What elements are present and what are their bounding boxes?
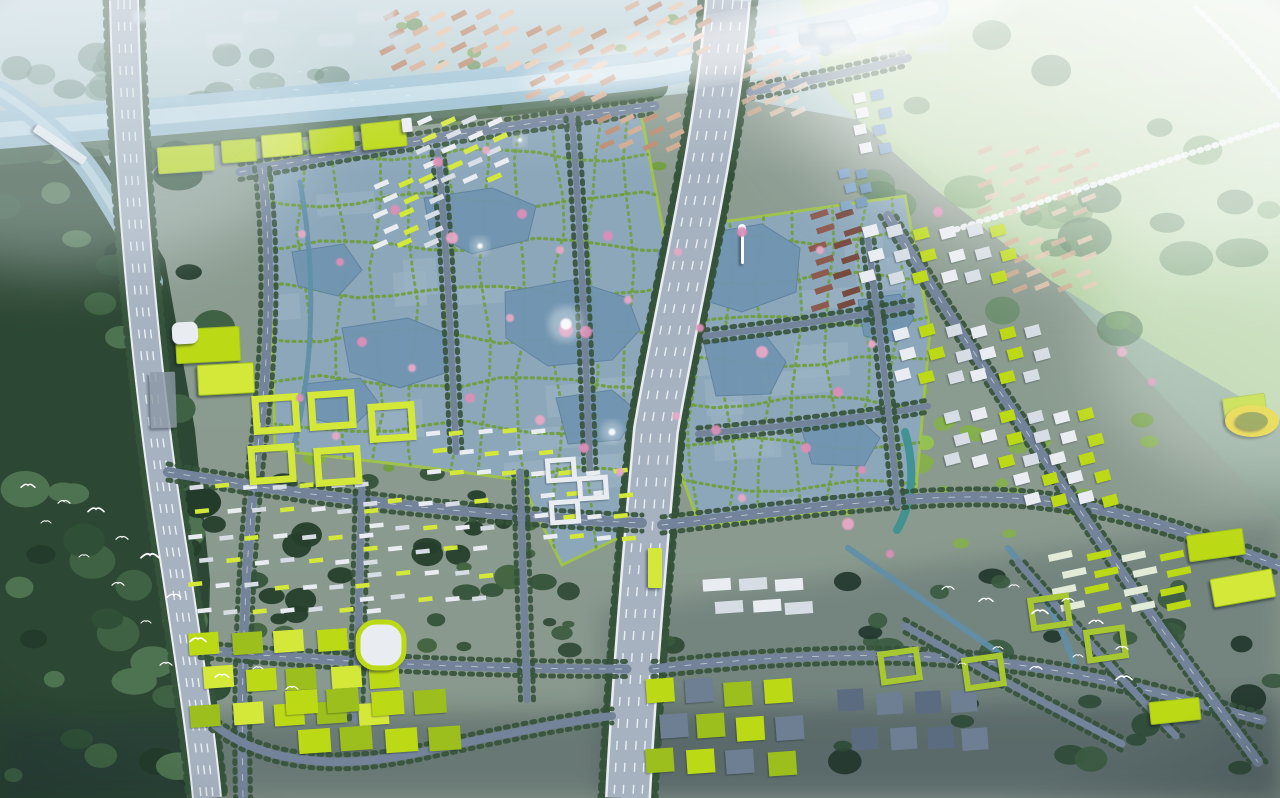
aerial-render-canvas: [0, 0, 1280, 798]
vignette-overlay: [0, 0, 1280, 798]
aerial-city-rendering: [0, 0, 1280, 798]
